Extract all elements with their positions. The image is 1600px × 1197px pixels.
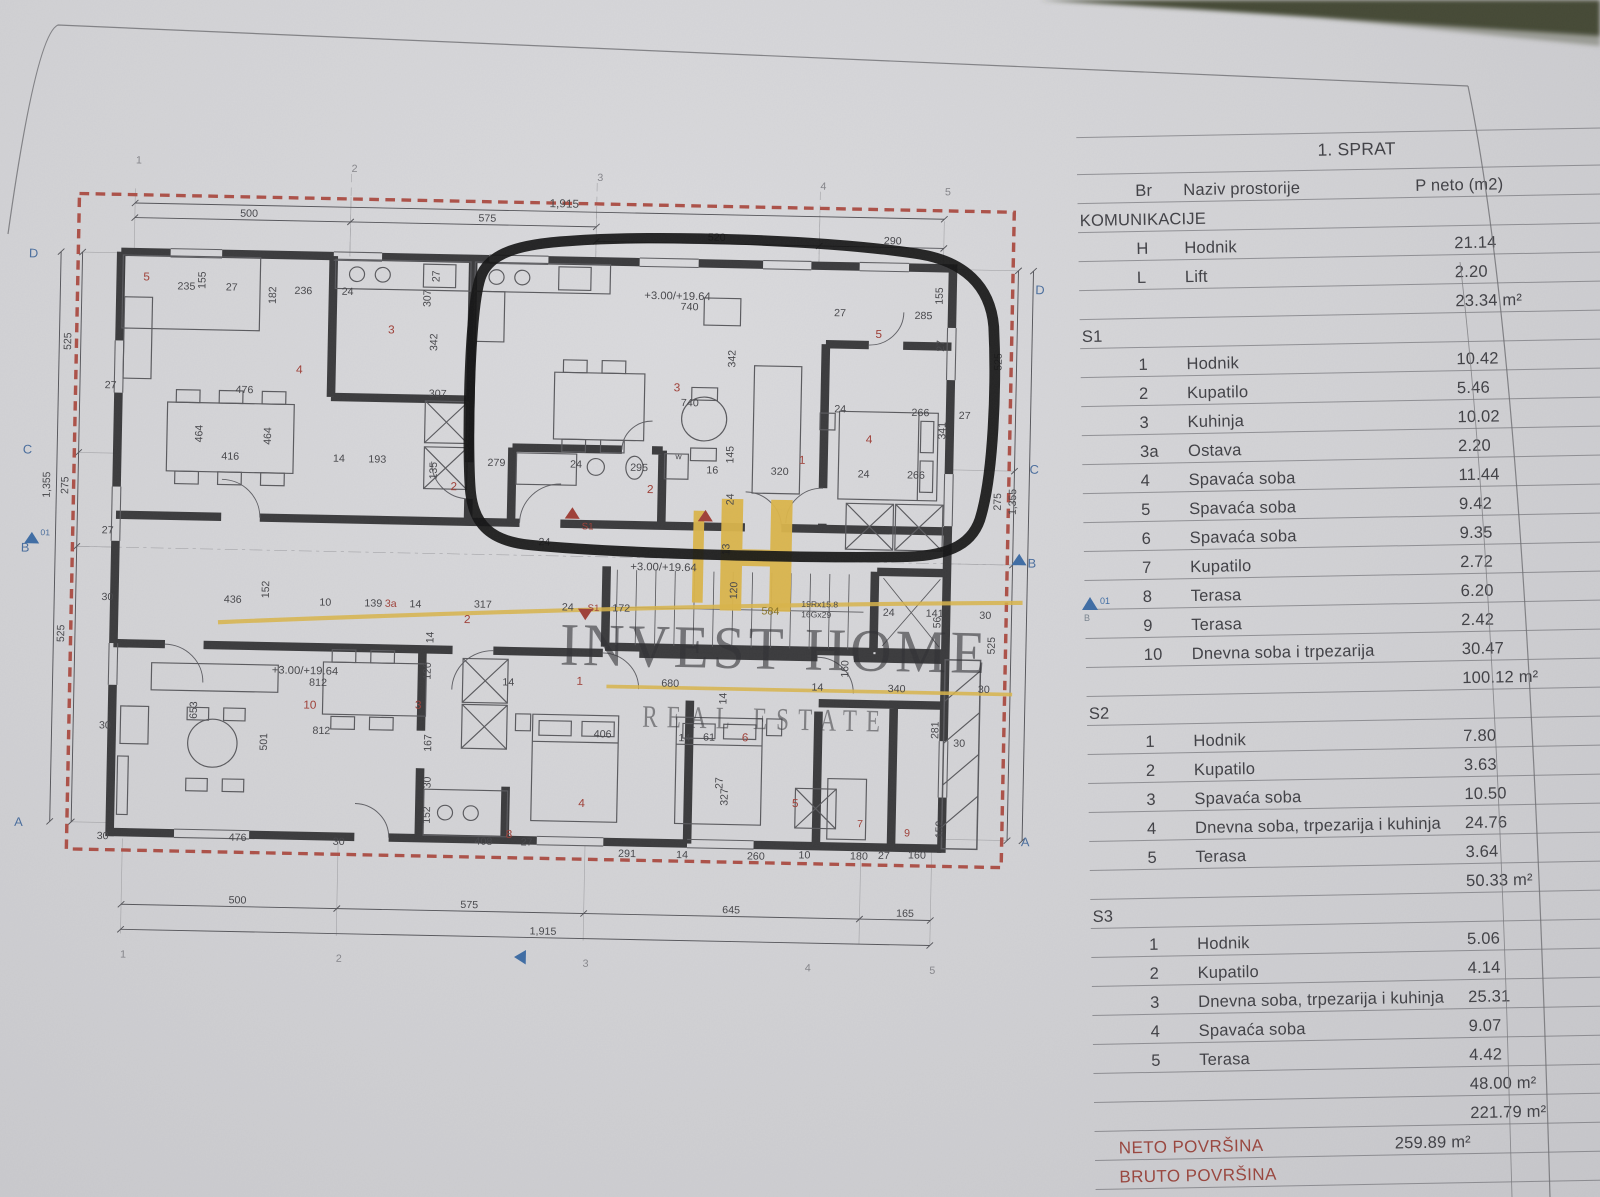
plan-label: +3.00/+19.64 — [272, 665, 339, 678]
marker-number: 01 — [1100, 596, 1110, 606]
room-area: 2.20 — [1458, 434, 1600, 456]
plan-label: 235 — [177, 281, 195, 293]
col-br: Br — [1077, 181, 1181, 202]
room-name: Spavaća soba — [1187, 495, 1459, 519]
subtotal-value: 50.33 m² — [1466, 869, 1600, 891]
plan-label: 01 — [40, 527, 50, 537]
room-name: Ostava — [1186, 437, 1458, 461]
plan-label: 476 — [229, 832, 247, 844]
room-number: 5 — [1093, 1051, 1197, 1072]
plan-label: 30 — [99, 720, 111, 732]
plan-label: 14 — [717, 693, 729, 705]
plan-label: 24 — [570, 459, 582, 471]
room-area: 9.42 — [1459, 492, 1600, 514]
plan-label: 30 — [979, 610, 991, 622]
room-name: Spavaća soba — [1197, 1017, 1469, 1041]
room-area: 3.63 — [1464, 753, 1600, 775]
plan-label: 30 — [101, 591, 113, 603]
plan-label: 152 — [260, 581, 273, 599]
room-number: 10 — [1086, 645, 1190, 666]
plan-label: 464 — [262, 427, 275, 445]
room-name: Spavaća soba — [1186, 466, 1458, 490]
plan-label: 27 — [834, 307, 846, 319]
plan-label: 167 — [422, 734, 435, 752]
room-number: 5 — [1083, 500, 1187, 521]
plan-label: 291 — [618, 848, 636, 860]
room-number: 4 — [1082, 471, 1186, 492]
plan-label: 2 — [336, 953, 342, 965]
plan-label: 120 — [421, 662, 434, 680]
plan-label: 575 — [478, 212, 496, 224]
plan-label: 14 — [502, 676, 514, 688]
room-area: 4.14 — [1467, 956, 1600, 978]
room-name: Terasa — [1189, 611, 1461, 635]
room-area: 24.76 — [1465, 811, 1600, 833]
plan-label: A — [1021, 835, 1030, 849]
room-name: Kupatilo — [1185, 379, 1457, 403]
room-area: 2.42 — [1461, 608, 1600, 630]
room-area: 2.20 — [1455, 260, 1600, 282]
room-name: Dnevna soba, trpezarija i kuhinja — [1196, 988, 1468, 1012]
plan-label: 9 — [904, 828, 910, 840]
subtotal-value: 100.12 m² — [1462, 666, 1600, 688]
plan-label: 342 — [428, 333, 441, 351]
room-name: Terasa — [1197, 1046, 1469, 1070]
watermark-title: INVEST HOME — [559, 611, 990, 687]
photographed-document-paper: INVEST HOME REAL ESTATE 123451,915500575… — [0, 0, 1600, 1197]
plan-label: 4 — [296, 363, 303, 376]
plan-label: 575 — [460, 899, 478, 911]
room-number: 4 — [1089, 819, 1193, 840]
total-value — [1396, 1178, 1600, 1183]
room-name: Spavaća soba — [1192, 785, 1464, 809]
plan-label: 266 — [907, 470, 925, 482]
plan-label: 3 — [388, 323, 395, 336]
plan-label: 525 — [55, 624, 68, 642]
plan-label: B — [1028, 557, 1037, 571]
blue-triangle-marker — [514, 950, 526, 965]
plan-label: 193 — [368, 454, 386, 466]
plan-label: 2 — [450, 480, 457, 493]
plan-label: 152 — [934, 821, 947, 839]
plan-label: 5 — [792, 797, 799, 810]
plan-label: +3.00/+19.64 — [644, 290, 711, 303]
room-number: 4 — [1093, 1022, 1197, 1043]
plan-label: 3 — [597, 172, 603, 184]
plan-label: 501 — [258, 733, 271, 751]
plan-label: 812 — [312, 725, 330, 737]
plan-label: 145 — [724, 446, 737, 464]
room-number: 1 — [1091, 935, 1195, 956]
plan-label: 584 — [761, 605, 779, 617]
room-number: 3 — [1088, 790, 1192, 811]
room-number: 5 — [1089, 848, 1193, 869]
room-number: 3 — [1092, 993, 1196, 1014]
plan-label: 160 — [908, 850, 926, 862]
plan-label: 27 — [959, 410, 971, 422]
plan-label: 1 — [799, 454, 806, 467]
plan-label: 120 — [728, 582, 741, 600]
room-name: Dnevna soba, trpezarija i kuhinja — [1193, 814, 1465, 838]
room-area: 6.20 — [1461, 579, 1600, 601]
plan-label: 653 — [188, 701, 201, 719]
plan-label: 14 — [811, 682, 823, 694]
plan-label: 152 — [421, 806, 434, 824]
plan-label: 1,355 — [41, 471, 54, 497]
room-name: Hodnik — [1182, 234, 1454, 258]
plan-label: 5 — [143, 271, 150, 284]
plan-label: +3.00/+19.64 — [630, 561, 697, 574]
red-triangle-marker — [565, 507, 580, 519]
room-area: 4.42 — [1469, 1043, 1600, 1065]
plan-label: 27 — [713, 777, 725, 789]
plan-label: 165 — [896, 908, 914, 920]
room-area: 9.35 — [1459, 521, 1600, 543]
room-area: 11.44 — [1458, 463, 1600, 485]
plan-label: 3 — [583, 958, 589, 970]
plan-label: 24 — [834, 403, 846, 415]
room-area: 5.06 — [1467, 927, 1600, 949]
blue-triangle-marker — [24, 532, 39, 544]
room-name: Hodnik — [1191, 727, 1463, 751]
plan-label: C — [23, 443, 33, 457]
room-number: L — [1079, 268, 1183, 289]
plan-label: 30 — [978, 684, 990, 696]
plan-label: 24 — [883, 607, 895, 619]
blue-triangle-marker — [1012, 554, 1027, 566]
plan-label: 61 — [703, 732, 715, 744]
plan-label: 14 — [333, 453, 345, 465]
background-above-paper — [1040, 0, 1600, 46]
room-number: 2 — [1088, 761, 1192, 782]
plan-label: 24 — [562, 601, 574, 613]
room-number: 7 — [1084, 558, 1188, 579]
room-name: Spavaća soba — [1188, 524, 1460, 548]
plan-label: 1,355 — [1007, 489, 1020, 515]
plan-label: 6 — [742, 731, 749, 744]
col-area: P neto (m2) — [1415, 173, 1600, 196]
room-name: Kupatilo — [1188, 553, 1460, 577]
room-number: 2 — [1081, 384, 1185, 405]
plan-label: 406 — [594, 728, 612, 740]
room-number: 2 — [1091, 964, 1195, 985]
plan-label: 320 — [771, 466, 789, 478]
plan-label: 10 — [798, 849, 810, 861]
plan-label: 4 — [805, 962, 811, 974]
plan-label: 295 — [630, 462, 648, 474]
plan-label: 307 — [429, 388, 447, 400]
floor-plan: INVEST HOME REAL ESTATE 123451,915500575… — [0, 140, 1066, 996]
plan-label: 27 — [105, 379, 117, 391]
plan-label: 680 — [661, 678, 679, 690]
triangle-marker-icon — [1082, 597, 1098, 610]
plan-label: 266 — [911, 407, 929, 419]
plan-label: 135 — [428, 462, 441, 480]
plan-label: 342 — [726, 350, 739, 368]
room-area: 5.46 — [1457, 376, 1600, 398]
plan-label: 645 — [722, 904, 740, 916]
plan-label: 5 — [875, 328, 882, 341]
plan-label: 19Rx15.8 — [801, 599, 838, 610]
room-area: 2.72 — [1460, 550, 1600, 572]
room-number: 6 — [1084, 529, 1188, 550]
plan-label: 56 — [931, 616, 943, 628]
room-number: 3a — [1082, 442, 1186, 463]
plan-label: 476 — [235, 384, 253, 396]
plan-label: 236 — [294, 285, 312, 297]
plan-label: 2 — [464, 613, 471, 626]
area-table-rows: KOMUNIKACIJEHHodnik21.14LLift2.2023.34 m… — [1078, 194, 1600, 1190]
room-name: Kupatilo — [1192, 756, 1464, 780]
plan-label: 341 — [936, 422, 949, 440]
plan-label: 1,915 — [529, 925, 556, 937]
plan-label: 24 — [858, 469, 870, 481]
total-label: NETO POVRŠINA — [1095, 1133, 1395, 1158]
plan-label: 2 — [352, 163, 358, 175]
plan-label: 275 — [992, 493, 1005, 511]
plan-label: 24 — [342, 286, 354, 298]
plan-label: w — [674, 451, 682, 461]
total-label: BRUTO POVRŠINA — [1095, 1162, 1395, 1187]
plan-label: 14 — [676, 849, 688, 861]
room-area: 7.80 — [1463, 724, 1600, 746]
room-area: 10.42 — [1456, 347, 1600, 369]
plan-label: 27 — [430, 270, 442, 282]
plan-label: 30 — [421, 776, 433, 788]
plan-label: 8 — [506, 828, 513, 841]
plan-label: 160 — [839, 660, 852, 678]
plan-label: 1 — [120, 949, 126, 961]
plan-label: 30 — [333, 836, 345, 848]
plan-label: C — [1029, 463, 1039, 477]
plan-label: 155 — [196, 271, 209, 289]
plan-label: 16Gx29 — [801, 609, 832, 619]
plan-label: 24 — [724, 493, 736, 505]
plan-label: 260 — [747, 851, 765, 863]
room-area: 3.64 — [1465, 840, 1600, 862]
plan-label: D — [1035, 283, 1045, 297]
plan-label: 180 — [850, 850, 868, 862]
plan-label: 2 — [647, 483, 654, 496]
total-value: 259.89 m² — [1395, 1130, 1600, 1154]
plan-label: A — [14, 815, 23, 829]
plan-label: 525 — [62, 332, 75, 350]
plan-label: 139 — [364, 598, 382, 610]
room-number: H — [1078, 239, 1182, 260]
room-name: Terasa — [1193, 843, 1465, 867]
plan-label: 10 — [303, 699, 317, 712]
room-name: Kuhinja — [1185, 408, 1457, 432]
subtotal-value: 23.34 m² — [1455, 289, 1600, 311]
plan-label: 7 — [857, 818, 863, 830]
plan-label: 279 — [487, 457, 505, 469]
col-name: Naziv prostorije — [1181, 176, 1453, 200]
room-number: 1 — [1080, 355, 1184, 376]
room-name: Hodnik — [1195, 930, 1467, 954]
plan-label: S1 — [582, 521, 594, 532]
door-arcs — [161, 298, 904, 848]
plan-label: 740 — [681, 301, 699, 313]
room-name: Lift — [1183, 263, 1455, 287]
plan-label: 3a — [385, 598, 397, 610]
plan-label: 155 — [934, 287, 947, 305]
room-area: 21.14 — [1454, 231, 1600, 253]
plan-label: 740 — [681, 397, 699, 409]
room-area: 25.31 — [1468, 985, 1600, 1007]
plan-label: 5 — [929, 965, 935, 977]
room-name: Hodnik — [1184, 350, 1456, 374]
room-area: 9.07 — [1468, 1014, 1600, 1036]
plan-label: 14 — [678, 732, 690, 744]
plan-label: 416 — [221, 451, 239, 463]
room-name: Kupatilo — [1195, 959, 1467, 983]
room-area: 10.50 — [1464, 782, 1600, 804]
plan-label: 16 — [706, 464, 718, 476]
plan-label: 500 — [240, 208, 258, 220]
plan-label: 436 — [224, 594, 242, 606]
room-number: 3 — [1081, 413, 1185, 434]
subtotal-value: 221.79 m² — [1470, 1101, 1600, 1123]
room-area: 10.02 — [1457, 405, 1600, 427]
plan-label: 27 — [226, 282, 238, 294]
plan-label: 281 — [929, 721, 942, 739]
room-number: 1 — [1087, 732, 1191, 753]
plan-label: 1,915 — [549, 197, 579, 210]
plan-label: 27 — [878, 850, 890, 862]
plan-label: 464 — [193, 425, 206, 443]
plan-label: 500 — [228, 894, 246, 906]
plan-label: 1 — [136, 154, 142, 166]
plan-label: 14 — [424, 631, 436, 643]
room-area: 30.47 — [1462, 637, 1600, 659]
plan-label: 30 — [953, 738, 965, 750]
plan-label: 1 — [576, 675, 583, 688]
subtotal-value: 48.00 m² — [1470, 1072, 1600, 1094]
plan-label: 285 — [914, 310, 932, 322]
plan-label: 27 — [935, 340, 947, 352]
room-name: Dnevna soba i trpezarija — [1190, 640, 1462, 664]
plan-label: 10 — [319, 597, 331, 609]
plan-label: 4 — [820, 181, 826, 193]
plan-label: 327 — [718, 788, 731, 806]
plan-label: 340 — [888, 683, 906, 695]
room-name: Terasa — [1189, 582, 1461, 606]
floor-title: 1. SPRAT — [1317, 138, 1395, 159]
plan-label: 3 — [674, 381, 681, 394]
marker-letter: B — [1084, 613, 1110, 623]
plan-label: 525 — [986, 637, 999, 655]
plan-label: 812 — [309, 677, 327, 689]
plan-label: 27 — [521, 837, 533, 849]
plan-label: 182 — [267, 286, 280, 304]
plan-label: 408 — [474, 836, 492, 848]
plan-label: D — [29, 246, 39, 260]
plan-label: 4 — [866, 433, 873, 446]
plan-label: 3 — [415, 699, 422, 712]
plan-label: 307 — [421, 289, 434, 307]
area-table: 1. SPRAT Br Naziv prostorije P neto (m2)… — [1076, 113, 1600, 1190]
plan-label: 27 — [102, 524, 114, 536]
plan-label: 275 — [59, 476, 72, 494]
plan-label: 14 — [409, 598, 421, 610]
plan-label: 4 — [578, 797, 585, 810]
plan-label: 317 — [474, 599, 492, 611]
plan-label: 30 — [97, 830, 109, 842]
plan-label: 172 — [612, 602, 630, 614]
plan-label: 5 — [945, 186, 951, 198]
grid-marker-b: 01 B — [1082, 596, 1110, 623]
